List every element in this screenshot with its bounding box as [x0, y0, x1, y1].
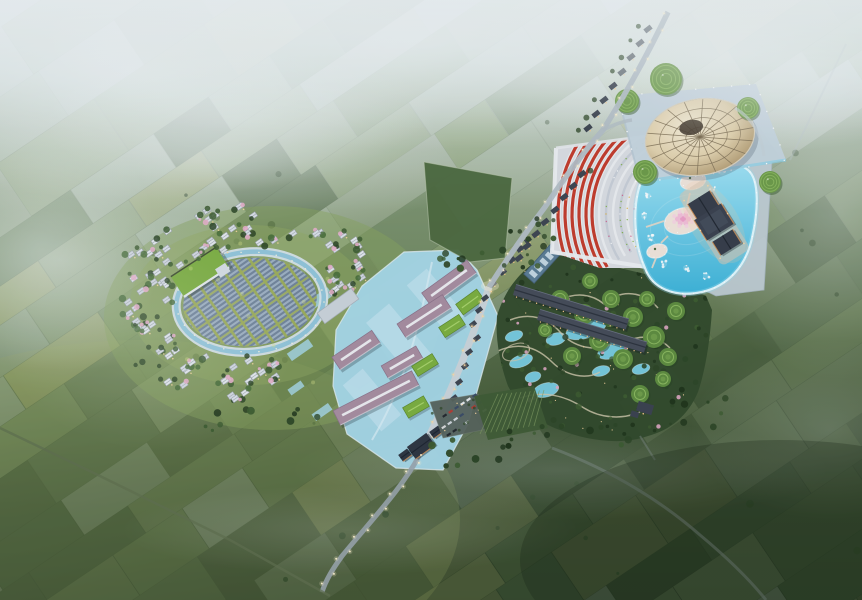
resort-masterplan-scene	[0, 0, 862, 600]
aerial-rendering	[0, 0, 862, 600]
foreground-mist	[0, 0, 862, 600]
